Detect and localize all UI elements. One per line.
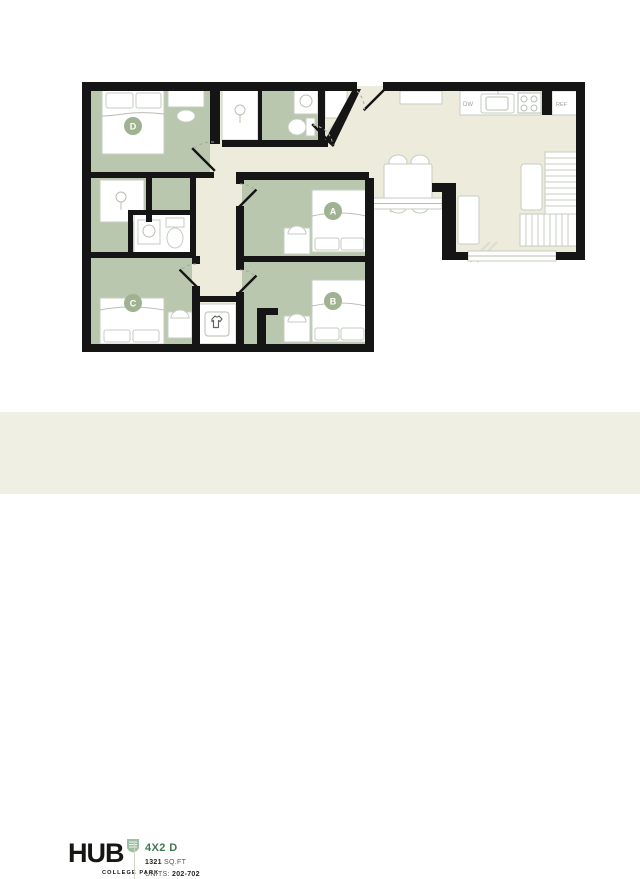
dining-table (384, 164, 432, 202)
svg-text:B: B (330, 297, 337, 307)
couch (458, 196, 479, 244)
refrigerator: REF (552, 91, 577, 115)
kitchen-counter: DW (460, 89, 541, 115)
bath-d (134, 214, 192, 254)
toilet-icon (166, 218, 184, 248)
shield-icon (126, 838, 140, 853)
floor-plan-svg: DW REF (72, 72, 592, 364)
footer-band: HUB COLLEGE PARK 4X2 D 1321 SQ.FT UNITS:… (0, 412, 640, 494)
kitchen-island (521, 164, 542, 210)
toilet-icon (288, 118, 315, 136)
room-label-a: A (324, 202, 342, 220)
page: { "plan": { "rooms": [ {"id": "A", "labe… (0, 0, 640, 494)
unit-numbers: UNITS: 202-702 (145, 871, 200, 878)
sink-icon (138, 220, 160, 244)
kitchen-cabinet (400, 91, 442, 104)
nightstand-c (168, 310, 192, 338)
refrigerator-label: REF (556, 102, 568, 108)
unit-info: 4X2 D 1321 SQ.FT UNITS: 202-702 (145, 842, 200, 878)
bed-b (312, 280, 366, 342)
floor-plan: DW REF (72, 72, 592, 364)
nightstand-b (284, 314, 310, 342)
dishwasher-label: DW (463, 102, 473, 108)
bed-a (312, 190, 366, 252)
svg-text:C: C (130, 299, 137, 309)
room-label-d: D (124, 117, 142, 135)
room-label-b: B (324, 292, 342, 310)
unit-sqft: 1321 SQ.FT (145, 859, 200, 866)
nightstand-a (284, 226, 310, 254)
unit-title: 4X2 D (145, 842, 200, 854)
closet-hall (222, 90, 258, 140)
room-label-c: C (124, 294, 142, 312)
brand-name: HUB (68, 840, 124, 867)
sink-icon (294, 90, 318, 114)
window-living (468, 251, 556, 261)
svg-text:A: A (330, 207, 337, 217)
svg-text:D: D (130, 122, 137, 132)
window-dining (372, 198, 442, 209)
laundry-closet (198, 304, 236, 344)
footer-divider (134, 841, 135, 879)
